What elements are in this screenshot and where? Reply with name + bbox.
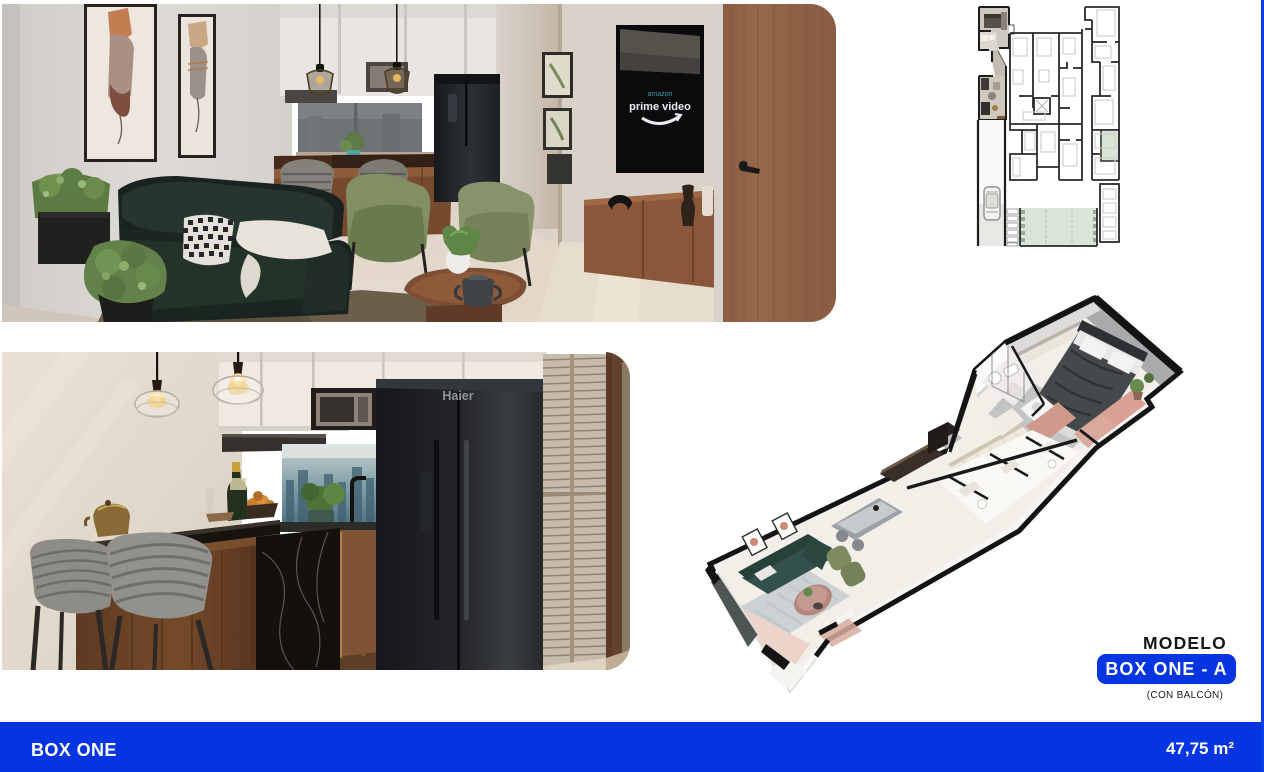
svg-text:Haier: Haier <box>442 389 473 403</box>
svg-text:prime video: prime video <box>629 101 691 113</box>
svg-text:amazon: amazon <box>648 91 673 98</box>
